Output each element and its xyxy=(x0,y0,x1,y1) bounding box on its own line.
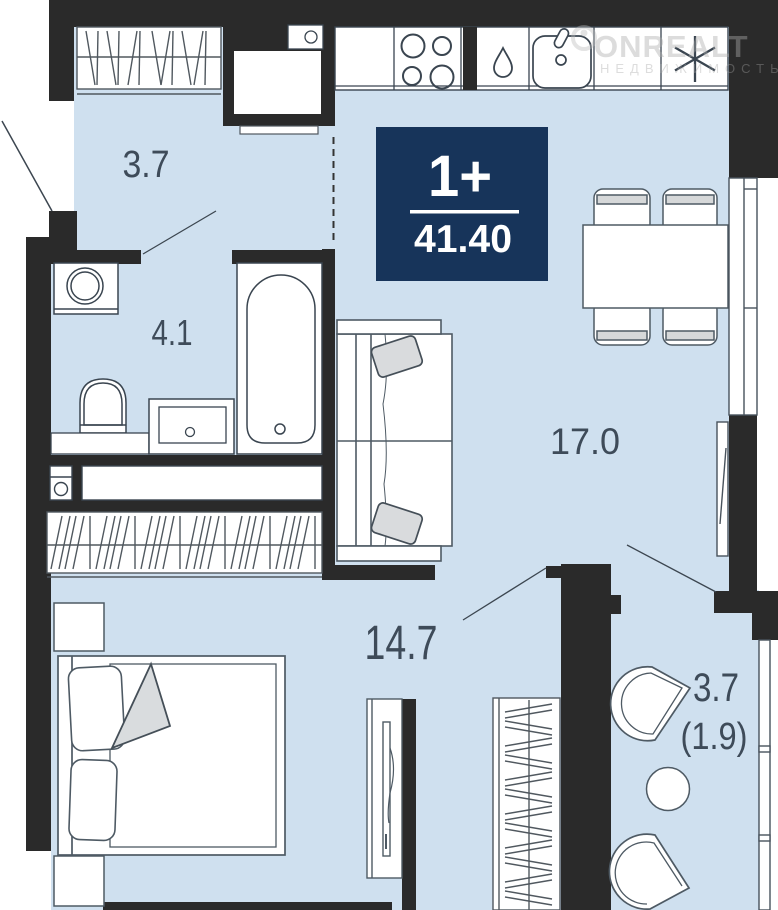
svg-text:3.7: 3.7 xyxy=(123,144,170,186)
svg-text:17.0: 17.0 xyxy=(550,421,620,462)
svg-text:(1.9): (1.9) xyxy=(681,716,748,758)
svg-text:НЕДВИЖИМОСТЬ: НЕДВИЖИМОСТЬ xyxy=(600,61,778,76)
svg-text:3.7: 3.7 xyxy=(693,666,739,710)
svg-text:14.7: 14.7 xyxy=(365,617,438,670)
svg-text:41.40: 41.40 xyxy=(414,218,512,261)
svg-text:4.1: 4.1 xyxy=(152,312,193,353)
svg-text:1+: 1+ xyxy=(428,144,492,209)
svg-text:ONREALT: ONREALT xyxy=(594,29,749,64)
